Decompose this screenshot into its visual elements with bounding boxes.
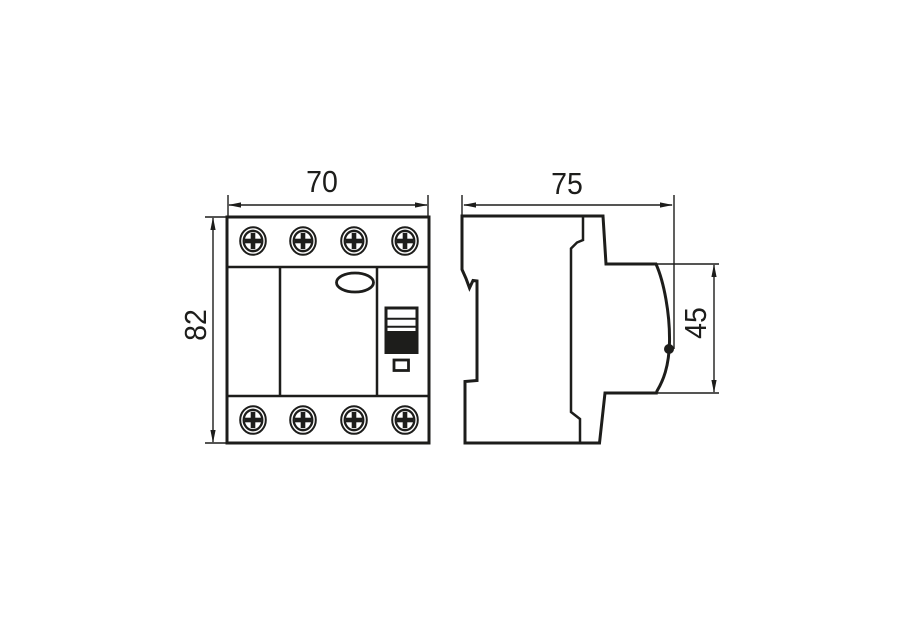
dim-panel-height-label: 45: [679, 307, 713, 339]
dim-height-label: 82: [179, 309, 213, 341]
screw-icon: [240, 406, 266, 434]
dim-height: 82: [179, 217, 226, 443]
screw-icon: [392, 227, 418, 255]
dim-width-label: 70: [306, 165, 338, 199]
indicator-window: [394, 360, 409, 371]
screw-icon: [341, 227, 367, 255]
toggle-switch: [386, 308, 417, 353]
arrowhead-right: [415, 202, 428, 207]
arrowhead-right: [660, 202, 673, 207]
arrowhead-up: [210, 217, 215, 230]
dim-width: 70: [228, 165, 428, 216]
toggle-tip-dot: [664, 344, 674, 354]
screw-icon: [392, 406, 418, 434]
dim-depth-label: 75: [551, 167, 583, 201]
arrowhead-down: [711, 380, 716, 393]
arrowhead-up: [711, 264, 716, 277]
screw-icon: [290, 227, 316, 255]
arrowhead-down: [210, 430, 215, 443]
side-view: 75 45: [462, 167, 719, 443]
front-view: 70 82: [179, 165, 429, 443]
side-profile: [462, 216, 670, 443]
screw-icon: [341, 406, 367, 434]
dimension-drawing: 70 82 75: [0, 0, 900, 630]
screw-icon: [240, 227, 266, 255]
dimension-drawing-canvas: 70 82 75: [0, 0, 900, 630]
test-button-oval: [337, 273, 374, 292]
switch-toggle-black: [388, 331, 416, 351]
arrowhead-left: [228, 202, 241, 207]
screw-icon: [290, 406, 316, 434]
arrowhead-left: [463, 202, 476, 207]
